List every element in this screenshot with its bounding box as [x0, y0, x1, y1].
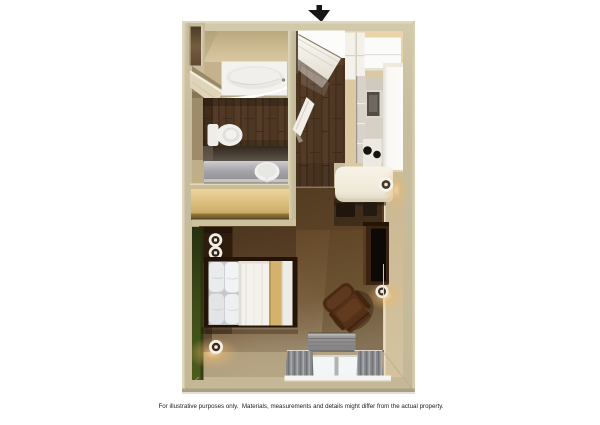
svg-text:For illustrative purposes only: For illustrative purposes only. Material…	[158, 403, 443, 410]
